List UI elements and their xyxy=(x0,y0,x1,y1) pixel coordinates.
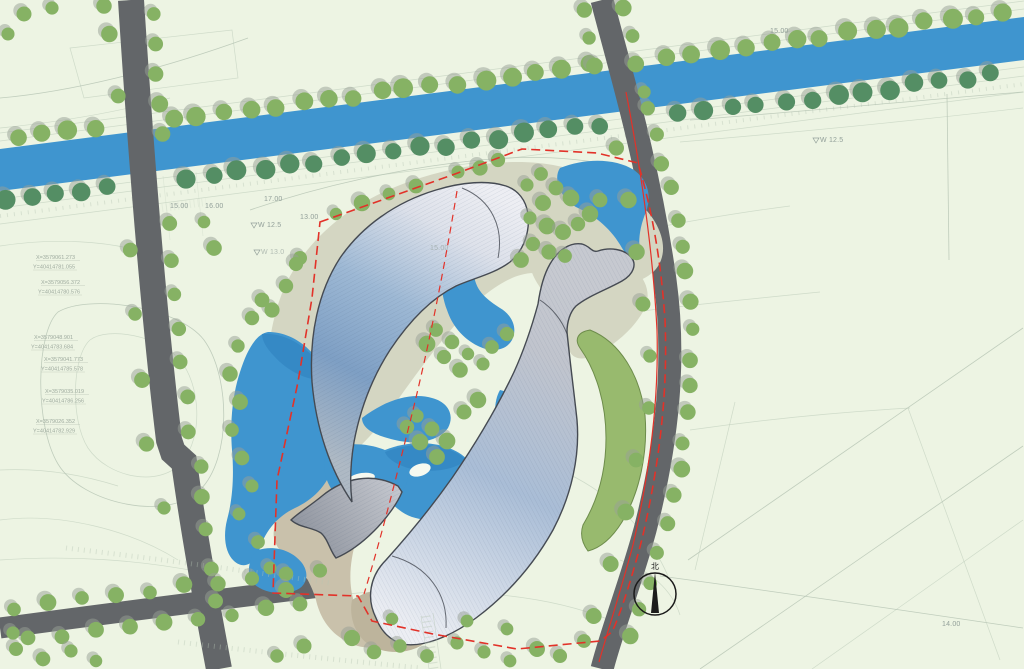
tree-icon xyxy=(293,597,308,612)
tree-icon xyxy=(162,216,177,231)
tree-icon xyxy=(245,311,259,325)
tree-icon xyxy=(654,156,669,171)
tree-icon xyxy=(412,434,428,450)
tree-icon xyxy=(571,217,585,231)
tree-icon xyxy=(99,178,116,195)
tree-icon xyxy=(429,323,443,337)
tree-icon xyxy=(280,154,299,173)
tree-icon xyxy=(64,644,77,657)
tree-icon xyxy=(968,9,984,25)
tree-icon xyxy=(437,138,455,156)
tree-icon xyxy=(157,501,170,514)
tree-icon xyxy=(40,594,57,611)
x-coordinate-label: X=3579061.273 xyxy=(36,255,75,261)
tree-icon xyxy=(437,350,451,364)
tree-icon xyxy=(206,240,222,256)
tree-icon xyxy=(628,244,644,260)
tree-icon xyxy=(553,649,567,663)
tree-icon xyxy=(267,99,285,117)
tree-icon xyxy=(243,101,261,119)
tree-icon xyxy=(357,144,376,163)
tree-icon xyxy=(558,249,572,263)
tree-icon xyxy=(231,339,244,352)
field-line xyxy=(812,520,1023,669)
tree-icon xyxy=(526,237,540,251)
tree-icon xyxy=(9,642,23,656)
tree-icon xyxy=(449,76,467,94)
x-coordinate-label: X=3579041.773 xyxy=(44,357,83,363)
tree-icon xyxy=(534,167,548,181)
tree-icon xyxy=(420,649,434,663)
tree-icon xyxy=(650,127,664,141)
tree-icon xyxy=(501,623,514,636)
tree-icon xyxy=(635,296,650,311)
north-label: 北 xyxy=(651,562,659,571)
tree-icon xyxy=(523,211,536,224)
tree-icon xyxy=(333,149,350,166)
tree-icon xyxy=(586,608,602,624)
y-coordinate-label: Y=40414786.256 xyxy=(42,399,84,405)
tree-icon xyxy=(156,614,173,631)
elevation-label: 13.00 xyxy=(300,214,319,221)
tree-icon xyxy=(108,587,124,603)
tree-icon xyxy=(176,576,193,593)
tree-icon xyxy=(476,71,496,91)
tree-icon xyxy=(470,392,487,409)
tree-icon xyxy=(563,190,580,207)
tree-icon xyxy=(210,576,225,591)
tree-icon xyxy=(96,0,111,14)
contour xyxy=(0,558,200,572)
tree-icon xyxy=(180,390,195,405)
tree-icon xyxy=(374,82,392,100)
tree-icon xyxy=(232,394,248,410)
tree-icon xyxy=(943,9,963,29)
tree-icon xyxy=(410,137,429,156)
tree-icon xyxy=(603,556,619,572)
tree-icon xyxy=(535,195,551,211)
tree-icon xyxy=(409,179,424,194)
tree-icon xyxy=(235,451,250,466)
tree-icon xyxy=(626,29,640,43)
tree-icon xyxy=(6,626,19,639)
tree-icon xyxy=(320,90,338,108)
tree-icon xyxy=(139,436,154,451)
field-line xyxy=(690,408,910,430)
tree-icon xyxy=(673,461,690,478)
tree-icon xyxy=(88,622,104,638)
tree-icon xyxy=(354,195,370,211)
elevation-label: 17.00 xyxy=(264,196,283,203)
tree-icon xyxy=(225,609,238,622)
tree-icon xyxy=(747,97,763,113)
tree-icon xyxy=(227,160,247,180)
tree-icon xyxy=(804,92,821,109)
tree-icon xyxy=(383,188,396,201)
tree-icon xyxy=(638,85,651,98)
tree-icon xyxy=(75,591,89,605)
tree-icon xyxy=(155,126,170,141)
tree-icon xyxy=(664,180,679,195)
tree-icon xyxy=(788,30,806,48)
tree-icon xyxy=(669,104,686,121)
tree-icon xyxy=(16,6,31,21)
tree-icon xyxy=(194,489,210,505)
tree-icon xyxy=(931,72,948,89)
tree-icon xyxy=(313,564,327,578)
x-coordinate-label: X=3579048.901 xyxy=(34,335,73,341)
tree-icon xyxy=(194,459,208,473)
tree-icon xyxy=(666,487,681,502)
tree-icon xyxy=(206,167,223,184)
tree-icon xyxy=(87,120,104,137)
tree-icon xyxy=(305,155,322,172)
water-level-marker-icon xyxy=(813,138,819,143)
tree-icon xyxy=(165,110,183,128)
tree-icon xyxy=(641,101,655,115)
tree-icon xyxy=(577,634,591,648)
tree-icon xyxy=(21,630,36,645)
tree-icon xyxy=(216,104,232,120)
tree-icon xyxy=(251,535,265,549)
tree-icon xyxy=(344,630,360,646)
tree-icon xyxy=(439,433,456,450)
tree-icon xyxy=(622,628,638,644)
tree-icon xyxy=(181,425,196,440)
tree-icon xyxy=(199,522,213,536)
y-coordinate-label: Y=40414782.929 xyxy=(33,429,75,435)
tree-icon xyxy=(58,120,77,139)
tree-icon xyxy=(270,649,283,662)
tree-icon xyxy=(982,64,999,81)
green-crescent xyxy=(577,330,645,551)
tree-icon xyxy=(811,30,828,47)
tree-icon xyxy=(452,166,465,179)
tree-icon xyxy=(694,101,713,120)
tree-icon xyxy=(725,99,741,115)
tree-icon xyxy=(122,619,138,635)
tree-icon xyxy=(172,322,186,336)
tree-icon xyxy=(513,252,529,268)
tree-icon xyxy=(7,603,21,617)
tree-icon xyxy=(632,602,646,616)
tree-icon xyxy=(489,130,508,149)
tree-icon xyxy=(36,652,51,667)
field-line xyxy=(660,576,1023,628)
tree-icon xyxy=(676,240,690,254)
tree-icon xyxy=(620,192,636,208)
tree-icon xyxy=(764,34,781,51)
x-coordinate-label: X=3579035.019 xyxy=(45,389,84,395)
elevation-label: 15.00 xyxy=(430,245,449,252)
contour xyxy=(0,518,178,560)
tree-icon xyxy=(567,118,584,135)
tree-icon xyxy=(410,409,423,422)
tree-icon xyxy=(208,594,223,609)
tree-icon xyxy=(615,0,632,16)
tree-icon xyxy=(529,641,545,657)
tree-icon xyxy=(710,40,730,60)
field-line xyxy=(688,328,1023,560)
tree-icon xyxy=(258,600,274,616)
tree-icon xyxy=(386,613,398,625)
tree-icon xyxy=(582,31,595,44)
field-line xyxy=(700,446,1023,669)
tree-icon xyxy=(429,449,445,465)
tree-icon xyxy=(279,279,293,293)
elevation-label: W 12.5 xyxy=(820,137,843,144)
tree-icon xyxy=(660,516,675,531)
tree-icon xyxy=(682,352,698,368)
tree-icon xyxy=(650,546,664,560)
tree-icon xyxy=(586,58,603,75)
tree-icon xyxy=(256,160,275,179)
tree-icon xyxy=(148,37,163,52)
tree-icon xyxy=(452,362,468,378)
tree-icon xyxy=(445,335,460,350)
tree-icon xyxy=(671,213,686,228)
tree-icon xyxy=(176,169,195,188)
tree-icon xyxy=(168,288,181,301)
tree-icon xyxy=(617,504,634,521)
tree-icon xyxy=(658,49,675,66)
tree-icon xyxy=(514,122,534,142)
tree-icon xyxy=(255,293,270,308)
tree-icon xyxy=(147,7,161,21)
tree-icon xyxy=(829,85,849,105)
water-level-marker-icon xyxy=(254,250,260,255)
y-coordinate-label: Y=40414780.576 xyxy=(38,290,80,296)
tree-icon xyxy=(485,340,499,354)
y-coordinate-label: Y=40414783.684 xyxy=(31,345,73,351)
tree-icon xyxy=(867,20,886,39)
tree-icon xyxy=(591,118,608,135)
tree-icon xyxy=(289,257,303,271)
tree-icon xyxy=(1,27,14,40)
tree-icon xyxy=(629,453,644,468)
tree-icon xyxy=(47,185,64,202)
tree-icon xyxy=(682,294,698,310)
field-line xyxy=(947,94,949,260)
tree-icon xyxy=(853,82,873,102)
tree-icon xyxy=(643,349,656,362)
x-coordinate-label: X=3579056.372 xyxy=(41,280,80,286)
tree-icon xyxy=(222,366,237,381)
tree-icon xyxy=(539,120,557,138)
tree-icon xyxy=(503,68,522,87)
site-plan-canvas: 15.0016.0017.00W 12.513.00W 13.015.00W 1… xyxy=(0,0,1024,669)
tree-icon xyxy=(143,586,157,600)
tree-icon xyxy=(838,22,857,41)
tree-icon xyxy=(642,401,655,414)
tree-icon xyxy=(278,582,294,598)
elevation-label: 14.00 xyxy=(942,621,961,628)
tree-icon xyxy=(24,188,42,206)
tree-icon xyxy=(476,357,489,370)
tree-icon xyxy=(504,655,517,668)
tree-icon xyxy=(880,81,900,101)
tree-icon xyxy=(186,107,205,126)
tree-icon xyxy=(245,572,259,586)
tree-icon xyxy=(173,355,188,370)
tree-icon xyxy=(367,645,381,659)
tree-icon xyxy=(527,64,544,81)
contour xyxy=(0,470,118,486)
tree-icon xyxy=(680,404,696,420)
elevation-label: W 13.0 xyxy=(261,249,284,256)
water-level-marker-icon xyxy=(251,223,257,228)
tree-icon xyxy=(582,206,598,222)
tree-icon xyxy=(345,90,362,107)
tree-icon xyxy=(123,243,138,258)
tree-icon xyxy=(682,45,700,63)
tree-icon xyxy=(148,66,163,81)
tree-icon xyxy=(295,92,313,110)
tree-icon xyxy=(33,125,50,142)
tree-icon xyxy=(609,140,624,155)
tree-icon xyxy=(959,71,976,88)
tree-icon xyxy=(737,39,754,56)
tree-icon xyxy=(461,615,474,628)
site-plan: 15.0016.0017.00W 12.513.00W 13.015.00W 1… xyxy=(0,0,1024,669)
tree-icon xyxy=(164,253,179,268)
tree-icon xyxy=(541,244,556,259)
tree-icon xyxy=(191,612,205,626)
tree-icon xyxy=(593,193,608,208)
tree-icon xyxy=(778,93,795,110)
tree-icon xyxy=(128,307,142,321)
elevation-label: 16.00 xyxy=(205,203,224,210)
tree-icon xyxy=(462,348,474,360)
tree-icon xyxy=(111,89,126,104)
tree-icon xyxy=(245,479,258,492)
tree-icon xyxy=(90,655,103,668)
tree-icon xyxy=(555,224,571,240)
tree-icon xyxy=(627,56,644,73)
tree-icon xyxy=(151,96,168,113)
elevation-label: 15.00 xyxy=(770,28,789,35)
tree-icon xyxy=(677,263,694,280)
tree-icon xyxy=(577,2,592,17)
tree-icon xyxy=(393,78,413,98)
tree-icon xyxy=(463,131,480,148)
tree-icon xyxy=(477,645,490,658)
tree-icon xyxy=(686,323,699,336)
y-coordinate-label: Y=40414785.578 xyxy=(41,367,83,373)
tree-icon xyxy=(101,26,117,42)
tree-icon xyxy=(520,178,533,191)
tree-icon xyxy=(393,639,406,652)
tree-icon xyxy=(456,404,471,419)
tree-icon xyxy=(915,12,932,29)
tree-icon xyxy=(233,508,246,521)
tree-icon xyxy=(0,190,16,210)
tree-icon xyxy=(905,73,924,92)
tree-icon xyxy=(682,378,697,393)
tree-icon xyxy=(994,3,1012,21)
tree-icon xyxy=(889,18,909,38)
tree-icon xyxy=(45,1,58,14)
elevation-label: W 12.5 xyxy=(258,222,281,229)
tree-icon xyxy=(134,372,150,388)
elevation-label: 15.00 xyxy=(170,203,189,210)
tree-icon xyxy=(421,76,438,93)
y-coordinate-label: Y=40414781.055 xyxy=(33,265,75,271)
field-line xyxy=(695,402,735,570)
tree-icon xyxy=(225,423,239,437)
tree-icon xyxy=(72,183,91,202)
tree-icon xyxy=(198,216,211,229)
tree-icon xyxy=(500,327,514,341)
tree-icon xyxy=(296,638,311,653)
tree-icon xyxy=(10,129,27,146)
tree-icon xyxy=(676,437,690,451)
tree-icon xyxy=(385,143,401,159)
x-coordinate-label: X=3579026.352 xyxy=(36,419,75,425)
tree-icon xyxy=(552,60,571,79)
